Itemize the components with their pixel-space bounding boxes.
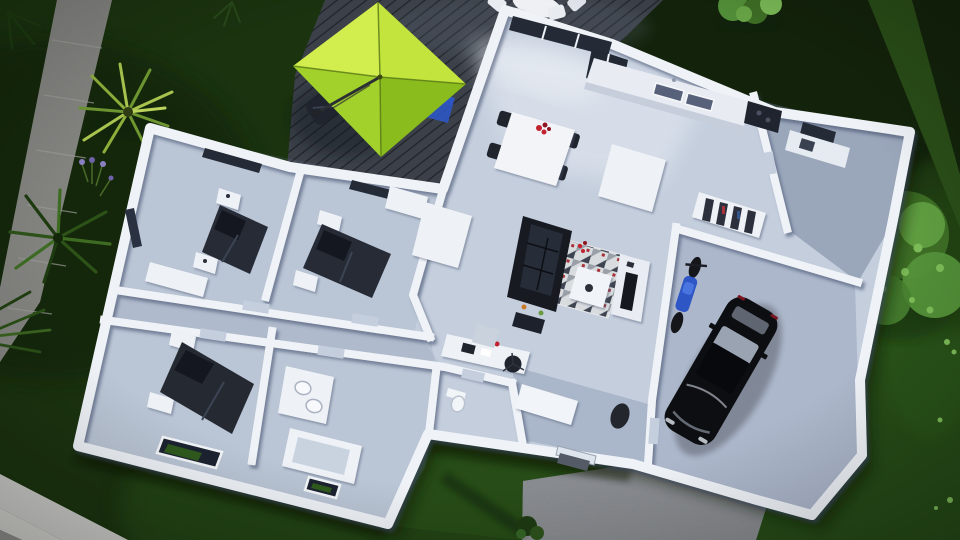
scene-canvas xyxy=(0,0,960,540)
vignette xyxy=(0,0,960,540)
floorplan-render xyxy=(0,0,960,540)
